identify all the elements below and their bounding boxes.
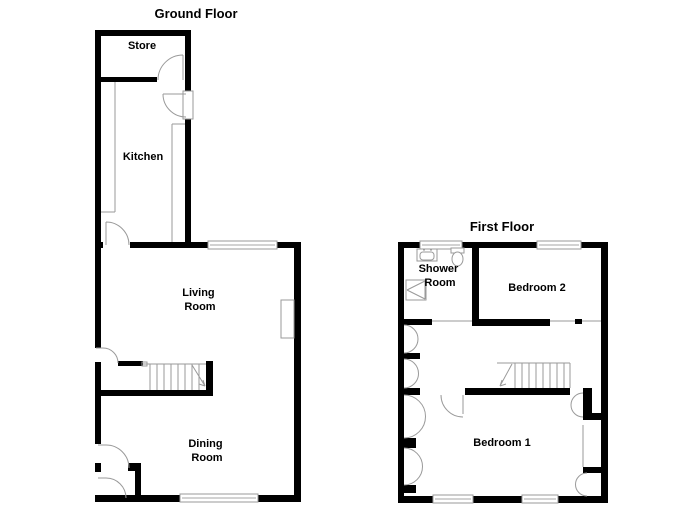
- ground-floor-title: Ground Floor: [154, 6, 237, 21]
- bedroom-1-window-left: [433, 495, 473, 503]
- shower-tray-icon: [406, 280, 426, 300]
- bifold-door-arcs: [404, 395, 426, 438]
- door-arc: [98, 445, 129, 468]
- store-door-swing: [158, 55, 183, 80]
- bifold-door-arcs: [404, 325, 418, 353]
- kitchen-door-swing: [106, 222, 129, 245]
- chimney-breast: [281, 300, 294, 338]
- door-arc: [106, 222, 129, 245]
- bedroom-1-window-right: [522, 495, 558, 503]
- label-line: Living: [182, 287, 214, 299]
- sink-icon: [417, 249, 437, 261]
- sink-basin: [420, 252, 434, 260]
- stair-treads: [150, 364, 199, 390]
- back-door-swing: [163, 91, 193, 119]
- floorplan-canvas: Ground Floor: [0, 0, 700, 509]
- ground-floor-plan: Ground Floor: [95, 6, 301, 502]
- label-line: Room: [424, 277, 455, 289]
- label-line: Room: [191, 452, 222, 464]
- room-label-kitchen: Kitchen: [123, 151, 164, 163]
- dining-door-swing: [98, 445, 129, 468]
- room-label-store: Store: [128, 40, 156, 52]
- room-label-shower-room: Shower Room: [419, 263, 462, 289]
- door-arc: [158, 55, 183, 80]
- door-panel: [183, 91, 193, 119]
- floorplan-page: Ground Floor: [0, 0, 700, 509]
- bifold-door-arcs: [576, 473, 588, 496]
- label-line: Shower: [419, 263, 459, 275]
- living-room-window: [208, 241, 277, 249]
- bifold-door-arcs: [571, 393, 583, 417]
- front-door-swing: [96, 348, 118, 363]
- dining-room-window: [180, 494, 258, 502]
- room-label-living-room: Living Room: [182, 287, 217, 313]
- stair-treads: [515, 363, 564, 388]
- stair-rail: [497, 363, 570, 388]
- first-floor-staircase: [497, 363, 570, 388]
- first-floor-plan: First Floor: [398, 219, 608, 503]
- label-line: Dining: [188, 438, 222, 450]
- room-label-bedroom-1: Bedroom 1: [473, 437, 530, 449]
- room-label-bedroom-2: Bedroom 2: [508, 282, 565, 294]
- stair-direction-arrow: [500, 364, 512, 386]
- first-floor-title: First Floor: [470, 219, 534, 234]
- bedroom-2-window: [537, 241, 581, 249]
- bifold-door-arcs: [404, 448, 423, 485]
- door-arc: [441, 395, 463, 417]
- ground-floor-walls: [95, 30, 301, 502]
- label-line: Room: [184, 301, 215, 313]
- door-arc: [96, 348, 118, 363]
- room-label-dining-room: Dining Room: [188, 438, 225, 464]
- ground-floor-staircase: [142, 362, 206, 390]
- shower-tray-outline: [406, 280, 426, 300]
- bifold-door-arcs: [404, 359, 419, 388]
- bedroom-1-door-swing: [441, 395, 463, 417]
